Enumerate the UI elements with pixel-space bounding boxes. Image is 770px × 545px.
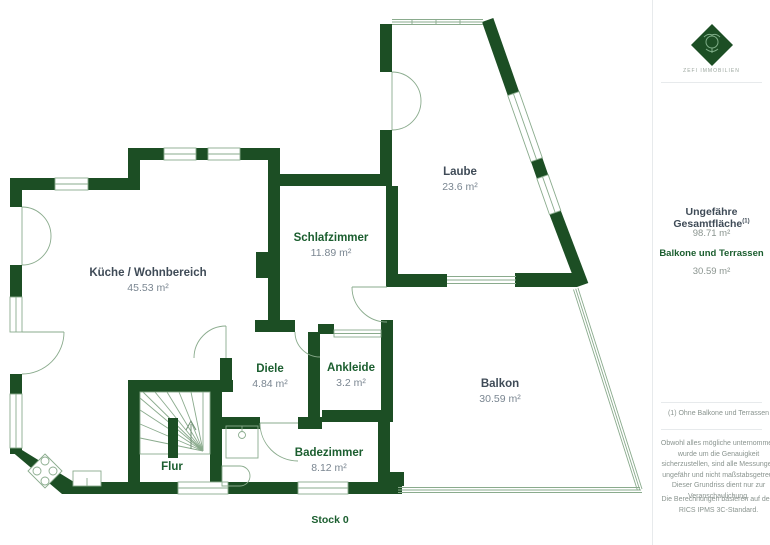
room-area-laube: 23.6 m² (442, 181, 478, 193)
brand-logo (653, 23, 770, 72)
info-sidebar: ZEFI IMMOBILIEN Ungefähre Gesamtfläche(1… (652, 0, 770, 545)
sidebar-divider (661, 429, 762, 430)
total-area-value: 98.71 m² (653, 228, 770, 239)
floor-plan-drawing: Küche / Wohnbereich 45.53 m² Schlafzimme… (0, 0, 652, 545)
balcony-area-value: 30.59 m² (653, 266, 770, 277)
total-area-label: Ungefähre Gesamtfläche(1) (653, 206, 770, 230)
total-area-superscript: (1) (742, 219, 749, 225)
room-area-badezimmer: 8.12 m² (311, 462, 347, 474)
sidebar-divider (661, 402, 762, 403)
room-label-laube: Laube (443, 166, 477, 178)
room-label-schlafzimmer: Schlafzimmer (294, 232, 369, 244)
sliding-door (334, 330, 381, 337)
floor-label: Stock 0 (311, 514, 349, 526)
disclaimer-text: Obwohl alles mögliche unternommen wurde … (653, 439, 770, 502)
shower-icon (226, 426, 258, 458)
room-label-ankleide: Ankleide (327, 362, 375, 374)
room-label-badezimmer: Badezimmer (295, 447, 364, 459)
stair-wall-stub (168, 418, 178, 458)
sidebar-divider (661, 82, 762, 83)
room-label-kueche: Küche / Wohnbereich (89, 267, 206, 279)
room-area-diele: 4.84 m² (252, 378, 288, 390)
lion-crest-icon (690, 23, 734, 67)
standard-note-text: Die Berechnungen basieren auf dem RICS I… (653, 495, 770, 516)
room-label-flur: Flur (161, 461, 183, 473)
room-labels: Küche / Wohnbereich 45.53 m² Schlafzimme… (89, 166, 521, 526)
room-area-ankleide: 3.2 m² (336, 377, 366, 389)
room-area-schlafzimmer: 11.89 m² (311, 247, 352, 259)
footnote-text: (1) Ohne Balkone und Terrassen (653, 409, 770, 420)
floorplan-page: Küche / Wohnbereich 45.53 m² Schlafzimme… (0, 0, 770, 545)
room-label-diele: Diele (256, 363, 284, 375)
wall-segments (10, 18, 588, 494)
balcony-area-label: Balkone und Terrassen (653, 248, 770, 259)
room-area-balkon: 30.59 m² (479, 393, 521, 405)
kitchen-sink-icon (73, 471, 101, 486)
total-area-label-text: Ungefähre Gesamtfläche (673, 206, 742, 230)
room-area-kueche: 45.53 m² (127, 282, 169, 294)
windows (10, 92, 561, 494)
brand-name: ZEFI IMMOBILIEN (653, 68, 770, 74)
room-label-balkon: Balkon (481, 378, 519, 390)
